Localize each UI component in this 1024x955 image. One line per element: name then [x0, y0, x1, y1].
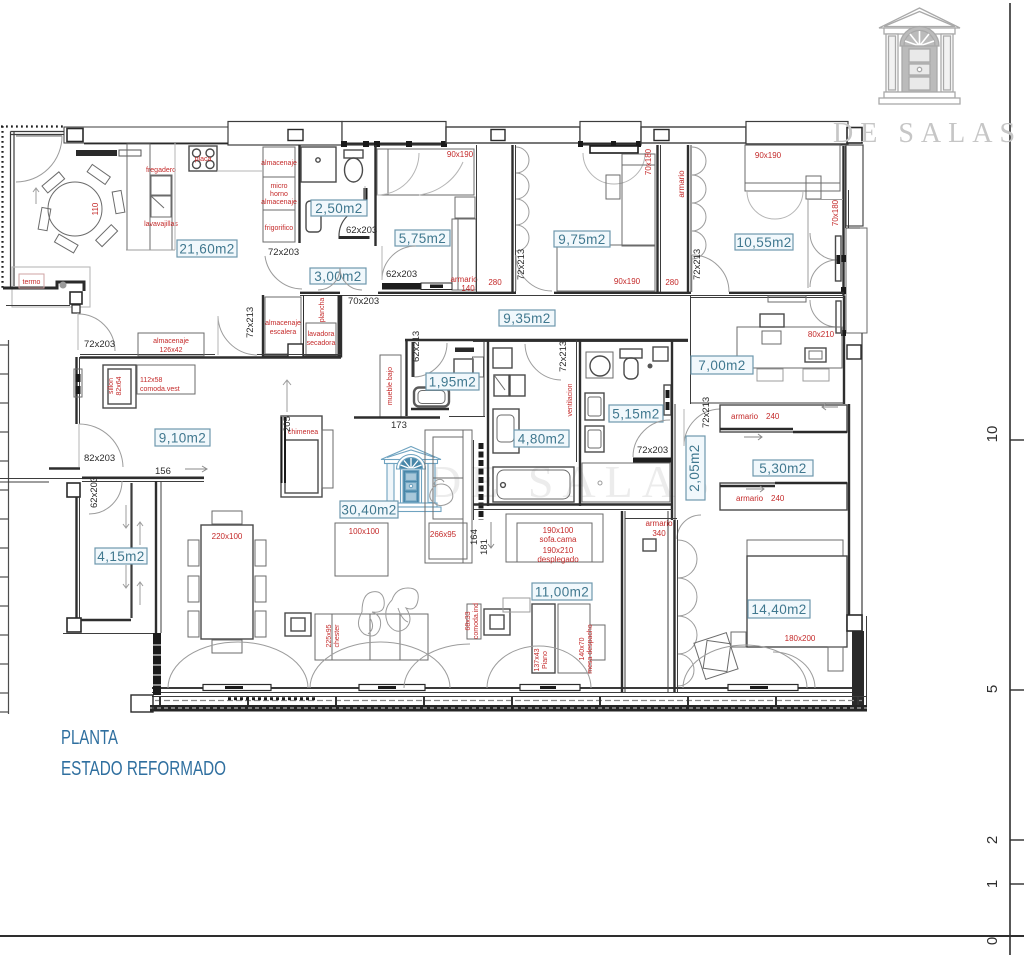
svg-text:80x210: 80x210	[808, 330, 835, 339]
svg-text:181: 181	[479, 539, 490, 555]
svg-text:72x213: 72x213	[701, 397, 712, 428]
svg-text:2,05m2: 2,05m2	[687, 444, 702, 491]
svg-text:PLANTA: PLANTA	[61, 727, 118, 749]
svg-text:1: 1	[984, 880, 1001, 888]
svg-text:horno: horno	[270, 191, 288, 198]
svg-text:lavadora: lavadora	[308, 331, 335, 338]
svg-text:5: 5	[984, 685, 1001, 693]
svg-text:1,95m2: 1,95m2	[429, 375, 476, 390]
svg-text:140x70: 140x70	[579, 637, 586, 660]
svg-text:266x95: 266x95	[430, 530, 457, 539]
svg-text:62x203: 62x203	[386, 269, 417, 280]
svg-text:90x190: 90x190	[755, 151, 782, 160]
svg-text:armario: armario	[677, 170, 686, 198]
svg-text:72x203: 72x203	[637, 445, 668, 456]
svg-text:220x100: 220x100	[212, 532, 243, 541]
svg-text:72x203: 72x203	[268, 247, 299, 258]
svg-text:10,55m2: 10,55m2	[736, 235, 791, 250]
svg-text:30,40m2: 30,40m2	[341, 503, 396, 518]
svg-text:10: 10	[984, 426, 1001, 443]
svg-text:225x95: 225x95	[326, 624, 333, 647]
svg-text:almacenaje: almacenaje	[261, 199, 297, 206]
svg-text:comoda.vest: comoda.vest	[140, 386, 180, 393]
svg-text:9,75m2: 9,75m2	[558, 232, 605, 247]
svg-text:secadora: secadora	[307, 340, 336, 347]
svg-text:armario: armario	[645, 519, 673, 528]
svg-text:340: 340	[652, 529, 666, 538]
svg-text:82x203: 82x203	[84, 453, 115, 464]
svg-text:2: 2	[984, 836, 1001, 844]
svg-text:armario: armario	[450, 275, 478, 284]
svg-text:frigorifico: frigorifico	[265, 225, 294, 232]
svg-text:DE SALAS: DE SALAS	[833, 118, 1022, 149]
svg-text:armario: armario	[731, 412, 759, 421]
svg-text:173: 173	[391, 420, 407, 431]
svg-text:240: 240	[771, 494, 785, 503]
svg-text:140: 140	[461, 284, 475, 293]
svg-text:desplegado: desplegado	[537, 555, 579, 564]
svg-text:62x203: 62x203	[346, 225, 377, 236]
svg-text:ventilacion: ventilacion	[567, 383, 574, 416]
svg-text:almacenaje: almacenaje	[261, 160, 297, 167]
svg-text:72x213: 72x213	[516, 249, 527, 280]
svg-text:280: 280	[665, 278, 679, 287]
svg-text:68x33: 68x33	[465, 611, 472, 630]
svg-text:190x210: 190x210	[543, 546, 574, 555]
svg-text:armario: armario	[736, 494, 764, 503]
svg-text:156: 156	[155, 466, 171, 477]
svg-text:micro: micro	[270, 183, 287, 190]
svg-text:72x213: 72x213	[245, 307, 256, 338]
svg-text:72x203: 72x203	[84, 339, 115, 350]
svg-text:82x64: 82x64	[116, 376, 123, 395]
svg-text:7,00m2: 7,00m2	[698, 358, 745, 373]
svg-text:90x190: 90x190	[447, 150, 474, 159]
svg-text:14,40m2: 14,40m2	[751, 602, 806, 617]
svg-text:190x100: 190x100	[543, 526, 574, 535]
svg-text:0: 0	[984, 937, 1001, 945]
svg-text:205: 205	[282, 416, 293, 432]
svg-text:termo: termo	[23, 279, 41, 286]
svg-text:72x213: 72x213	[558, 341, 569, 372]
svg-text:9,10m2: 9,10m2	[159, 431, 206, 446]
svg-text:4,15m2: 4,15m2	[97, 549, 144, 564]
svg-text:plancha: plancha	[319, 298, 326, 323]
svg-text:mesa despacho: mesa despacho	[587, 624, 594, 674]
svg-text:fregadero: fregadero	[146, 167, 176, 174]
svg-text:62x213: 62x213	[411, 331, 422, 362]
svg-text:Piano: Piano	[542, 651, 549, 669]
svg-text:180x200: 180x200	[785, 634, 816, 643]
svg-text:9,35m2: 9,35m2	[503, 311, 550, 326]
svg-text:70x180: 70x180	[644, 148, 653, 175]
svg-text:100x100: 100x100	[349, 527, 380, 536]
svg-text:240: 240	[766, 412, 780, 421]
svg-text:almacenaje: almacenaje	[265, 320, 301, 327]
svg-text:21,60m2: 21,60m2	[179, 242, 234, 257]
svg-text:almacenaje: almacenaje	[153, 338, 189, 345]
svg-text:70x203: 70x203	[348, 296, 379, 307]
svg-text:chester: chester	[334, 624, 341, 648]
svg-text:escalera: escalera	[270, 329, 297, 336]
svg-text:2,50m2: 2,50m2	[315, 201, 362, 216]
svg-text:72x213: 72x213	[692, 249, 703, 280]
svg-text:mueble bajo: mueble bajo	[387, 367, 394, 405]
svg-text:137x43: 137x43	[534, 648, 541, 671]
svg-text:110: 110	[91, 202, 100, 215]
svg-text:sofa.cama: sofa.cama	[540, 535, 577, 544]
svg-text:ESTADO REFORMADO: ESTADO REFORMADO	[61, 758, 226, 780]
svg-text:112x58: 112x58	[140, 377, 163, 384]
svg-text:5,15m2: 5,15m2	[612, 407, 659, 422]
svg-text:comoda.ind: comoda.ind	[473, 603, 480, 639]
svg-text:5,75m2: 5,75m2	[399, 231, 446, 246]
svg-text:4,80m2: 4,80m2	[518, 432, 565, 447]
svg-text:sillon: sillon	[108, 378, 115, 394]
svg-text:11,00m2: 11,00m2	[535, 585, 589, 600]
svg-text:90x190: 90x190	[614, 277, 641, 286]
svg-text:62x203: 62x203	[89, 477, 100, 508]
svg-text:5,30m2: 5,30m2	[759, 461, 806, 476]
svg-text:70x180: 70x180	[831, 199, 840, 226]
svg-text:126x42: 126x42	[160, 347, 183, 354]
svg-text:lavavajillas: lavavajillas	[144, 221, 178, 228]
svg-text:280: 280	[488, 278, 502, 287]
svg-text:placa: placa	[195, 156, 212, 163]
